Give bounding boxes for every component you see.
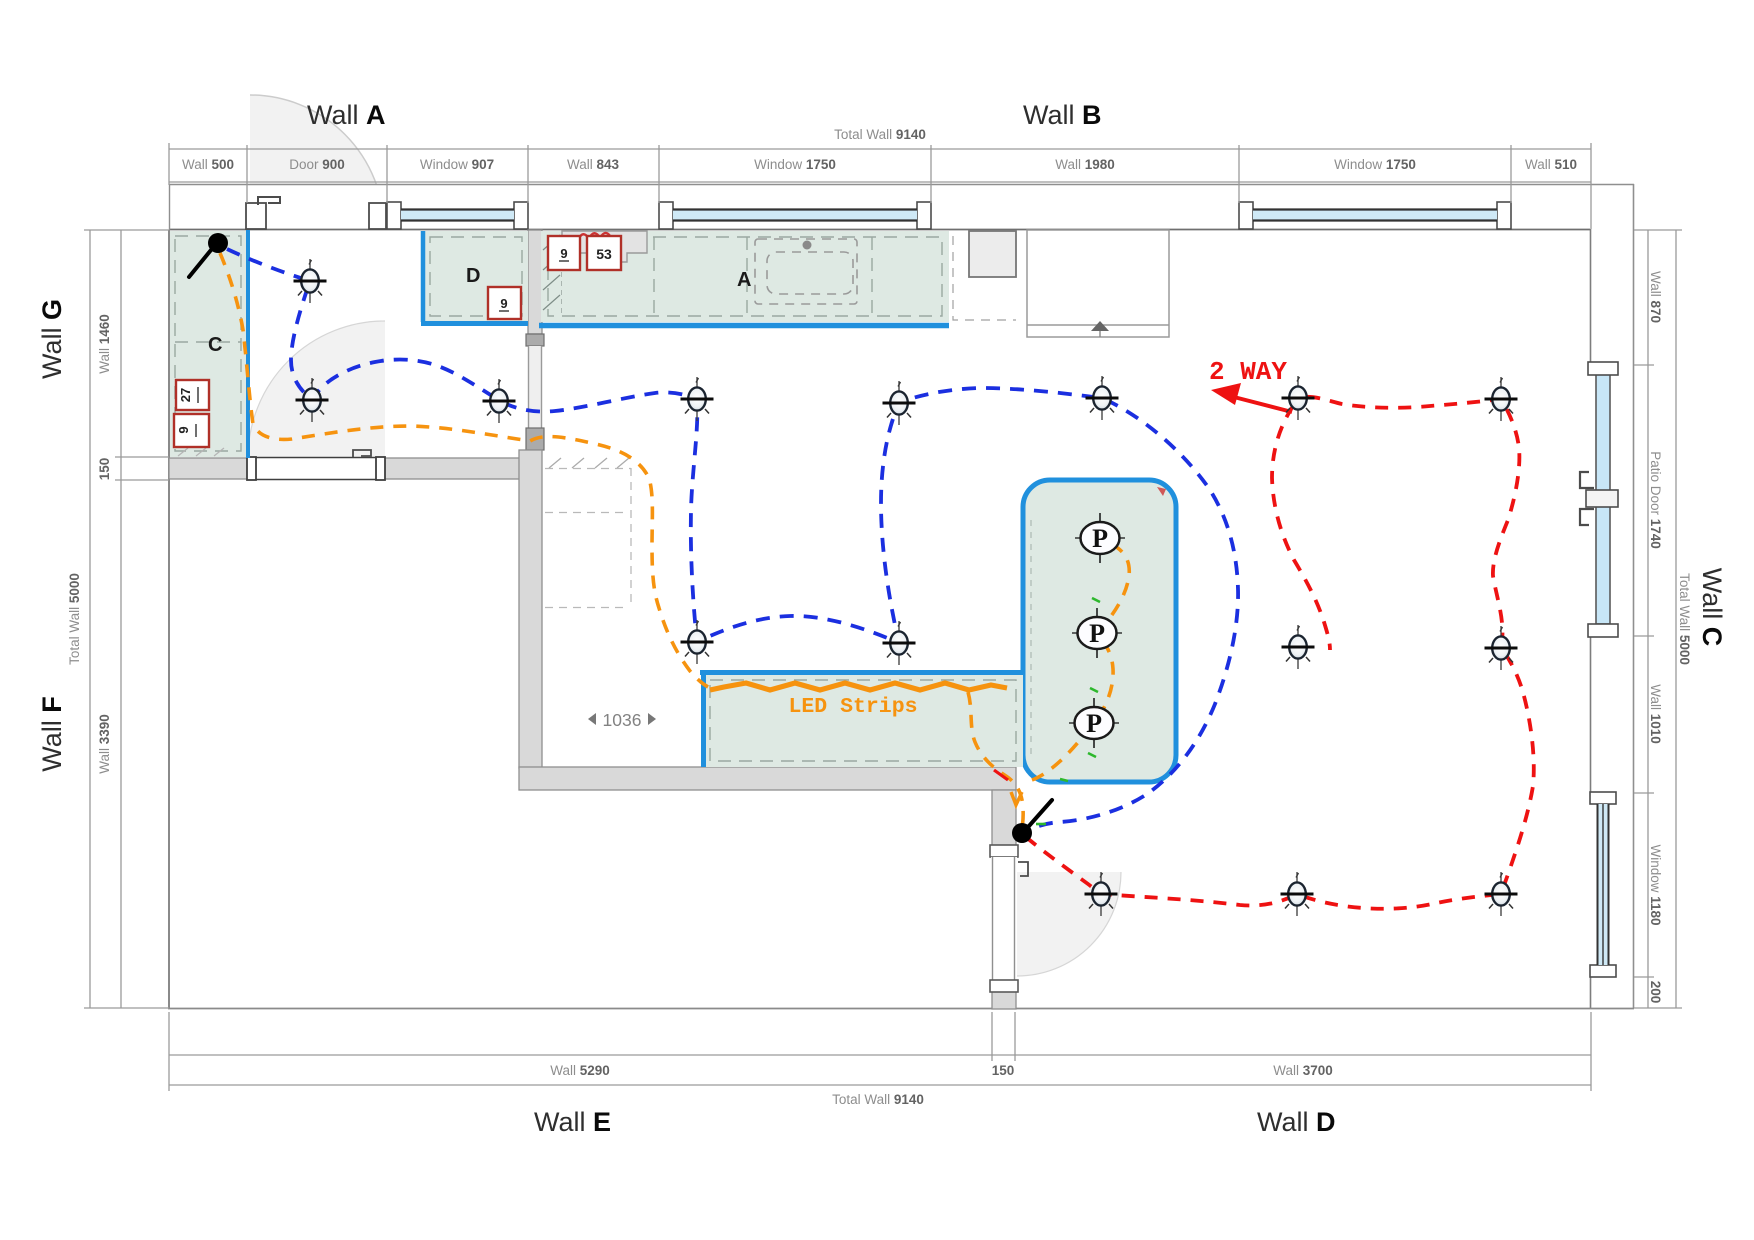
svg-text:Total Wall 5000: Total Wall 5000 [67, 573, 82, 665]
svg-text:9: 9 [500, 296, 507, 311]
svg-text:1036: 1036 [603, 710, 642, 730]
svg-text:Wall D: Wall D [1257, 1107, 1336, 1137]
svg-text:Wall 500: Wall 500 [182, 157, 234, 172]
svg-text:Patio Door 1740: Patio Door 1740 [1648, 451, 1663, 549]
svg-text:Total Wall 9140: Total Wall 9140 [834, 127, 926, 142]
svg-text:Window 1750: Window 1750 [1334, 157, 1416, 172]
svg-text:200: 200 [1648, 981, 1663, 1004]
svg-text:Wall G: Wall G [37, 299, 67, 379]
svg-text:53: 53 [596, 246, 612, 262]
svg-text:150: 150 [992, 1063, 1015, 1078]
svg-text:Wall F: Wall F [37, 696, 67, 772]
svg-text:Window 1750: Window 1750 [754, 157, 836, 172]
svg-text:27: 27 [178, 388, 193, 402]
svg-text:Wall 510: Wall 510 [1525, 157, 1577, 172]
svg-text:9: 9 [176, 426, 191, 433]
svg-text:9: 9 [560, 246, 567, 261]
svg-text:Wall 1010: Wall 1010 [1648, 684, 1663, 744]
svg-text:Wall 3700: Wall 3700 [1273, 1063, 1333, 1078]
svg-text:150: 150 [97, 458, 112, 481]
svg-text:Wall 1460: Wall 1460 [97, 314, 112, 374]
svg-text:Wall 870: Wall 870 [1648, 271, 1663, 323]
svg-text:Wall 5290: Wall 5290 [550, 1063, 610, 1078]
svg-text:Wall C: Wall C [1697, 568, 1727, 647]
svg-text:Wall 3390: Wall 3390 [97, 714, 112, 774]
svg-text:C: C [208, 334, 222, 356]
svg-text:Total Wall 5000: Total Wall 5000 [1677, 573, 1692, 665]
svg-text:2 WAY: 2 WAY [1209, 357, 1287, 387]
svg-text:A: A [737, 269, 751, 291]
svg-text:D: D [466, 265, 480, 287]
svg-text:Wall E: Wall E [534, 1107, 611, 1137]
svg-text:Wall 1980: Wall 1980 [1055, 157, 1115, 172]
svg-text:Window 907: Window 907 [420, 157, 494, 172]
svg-text:LED Strips: LED Strips [788, 695, 917, 719]
svg-text:Door 900: Door 900 [289, 157, 345, 172]
svg-text:Wall B: Wall B [1023, 100, 1102, 130]
svg-text:Window 1180: Window 1180 [1648, 844, 1663, 925]
svg-text:Total Wall 9140: Total Wall 9140 [832, 1092, 924, 1107]
svg-text:Wall A: Wall A [307, 100, 386, 130]
svg-text:Wall 843: Wall 843 [567, 157, 620, 172]
